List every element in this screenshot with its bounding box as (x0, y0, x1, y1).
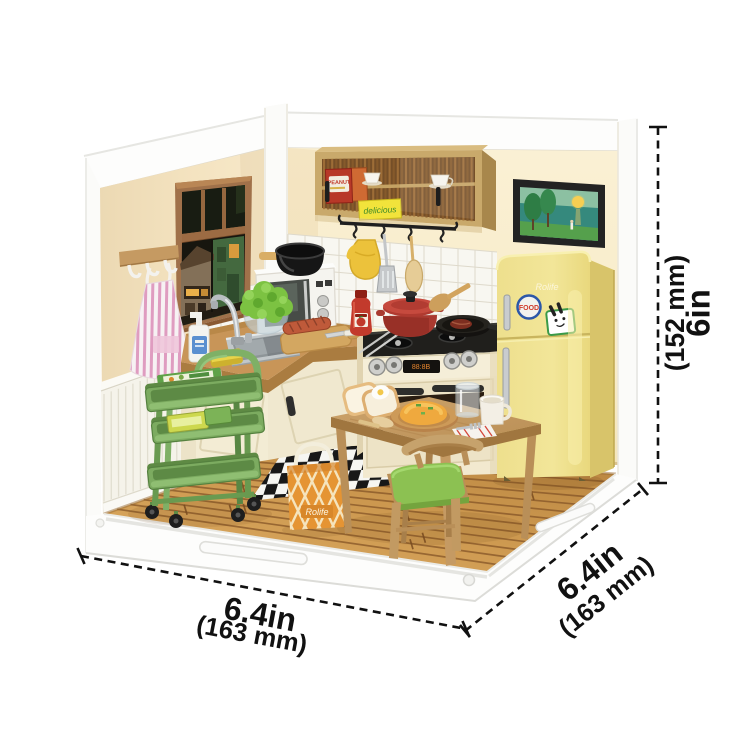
svg-text:delicious: delicious (363, 204, 397, 216)
svg-text:Rolife: Rolife (535, 282, 558, 292)
svg-text:PEANUT: PEANUT (328, 180, 351, 187)
svg-text:88:8B: 88:8B (412, 364, 431, 371)
svg-text:(152 mm): (152 mm) (660, 255, 690, 371)
svg-text:Rolife: Rolife (305, 507, 328, 517)
svg-text:FOOD: FOOD (519, 305, 539, 312)
